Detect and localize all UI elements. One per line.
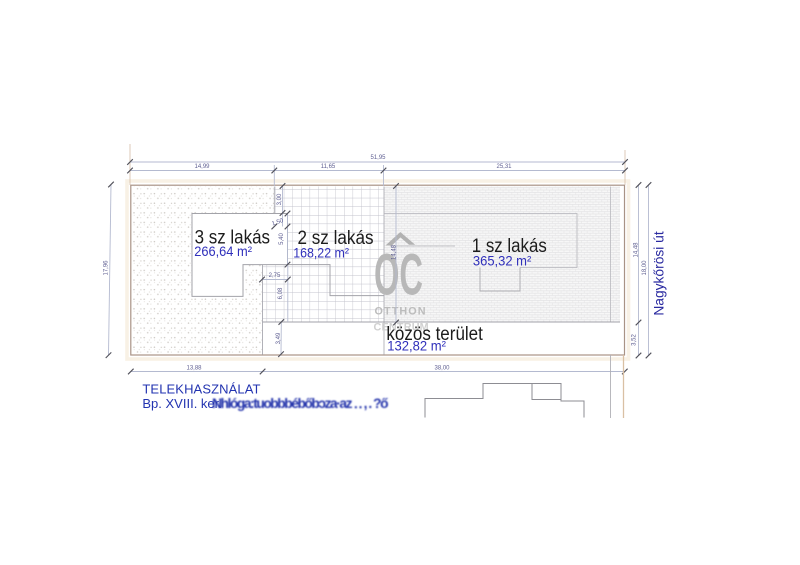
svg-text:132,82 m²: 132,82 m² [387, 337, 446, 353]
svg-text:25,31: 25,31 [496, 164, 512, 170]
svg-text:168,22 m²: 168,22 m² [293, 245, 349, 261]
svg-text:38,00: 38,00 [434, 366, 450, 372]
svg-text:OTTHON: OTTHON [375, 306, 427, 318]
svg-text:11,65: 11,65 [321, 164, 336, 170]
svg-text:51,95: 51,95 [370, 155, 386, 161]
svg-text:5,40: 5,40 [279, 233, 285, 245]
svg-text:14,48: 14,48 [634, 242, 640, 258]
svg-text:14,99: 14,99 [194, 164, 210, 170]
svg-text:17,96: 17,96 [104, 260, 110, 276]
svg-text:3,52: 3,52 [632, 334, 638, 346]
svg-text:OC: OC [374, 243, 423, 308]
svg-text:3,00: 3,00 [277, 193, 283, 205]
svg-text:2,75: 2,75 [269, 273, 281, 279]
svg-text:Nhlóga:tuobbbébőbɔza·az ‥ , .: Nhlóga:tuobbbébőbɔza·az ‥ , . ?ő [212, 396, 388, 411]
svg-text:Bp. XVIII. ker.: Bp. XVIII. ker. [142, 396, 221, 411]
svg-text:13,88: 13,88 [186, 366, 202, 372]
svg-text:365,32 m²: 365,32 m² [473, 253, 532, 269]
svg-text:3,49: 3,49 [276, 332, 282, 344]
svg-text:TELEKHASZNÁLAT: TELEKHASZNÁLAT [142, 382, 260, 397]
svg-text:6,08: 6,08 [278, 287, 284, 299]
svg-text:266,64 m²: 266,64 m² [194, 243, 252, 259]
svg-text:18,00: 18,00 [642, 260, 648, 276]
svg-text:Nagykőrösi út: Nagykőrösi út [652, 231, 667, 316]
svg-text:14,48: 14,48 [392, 244, 398, 260]
